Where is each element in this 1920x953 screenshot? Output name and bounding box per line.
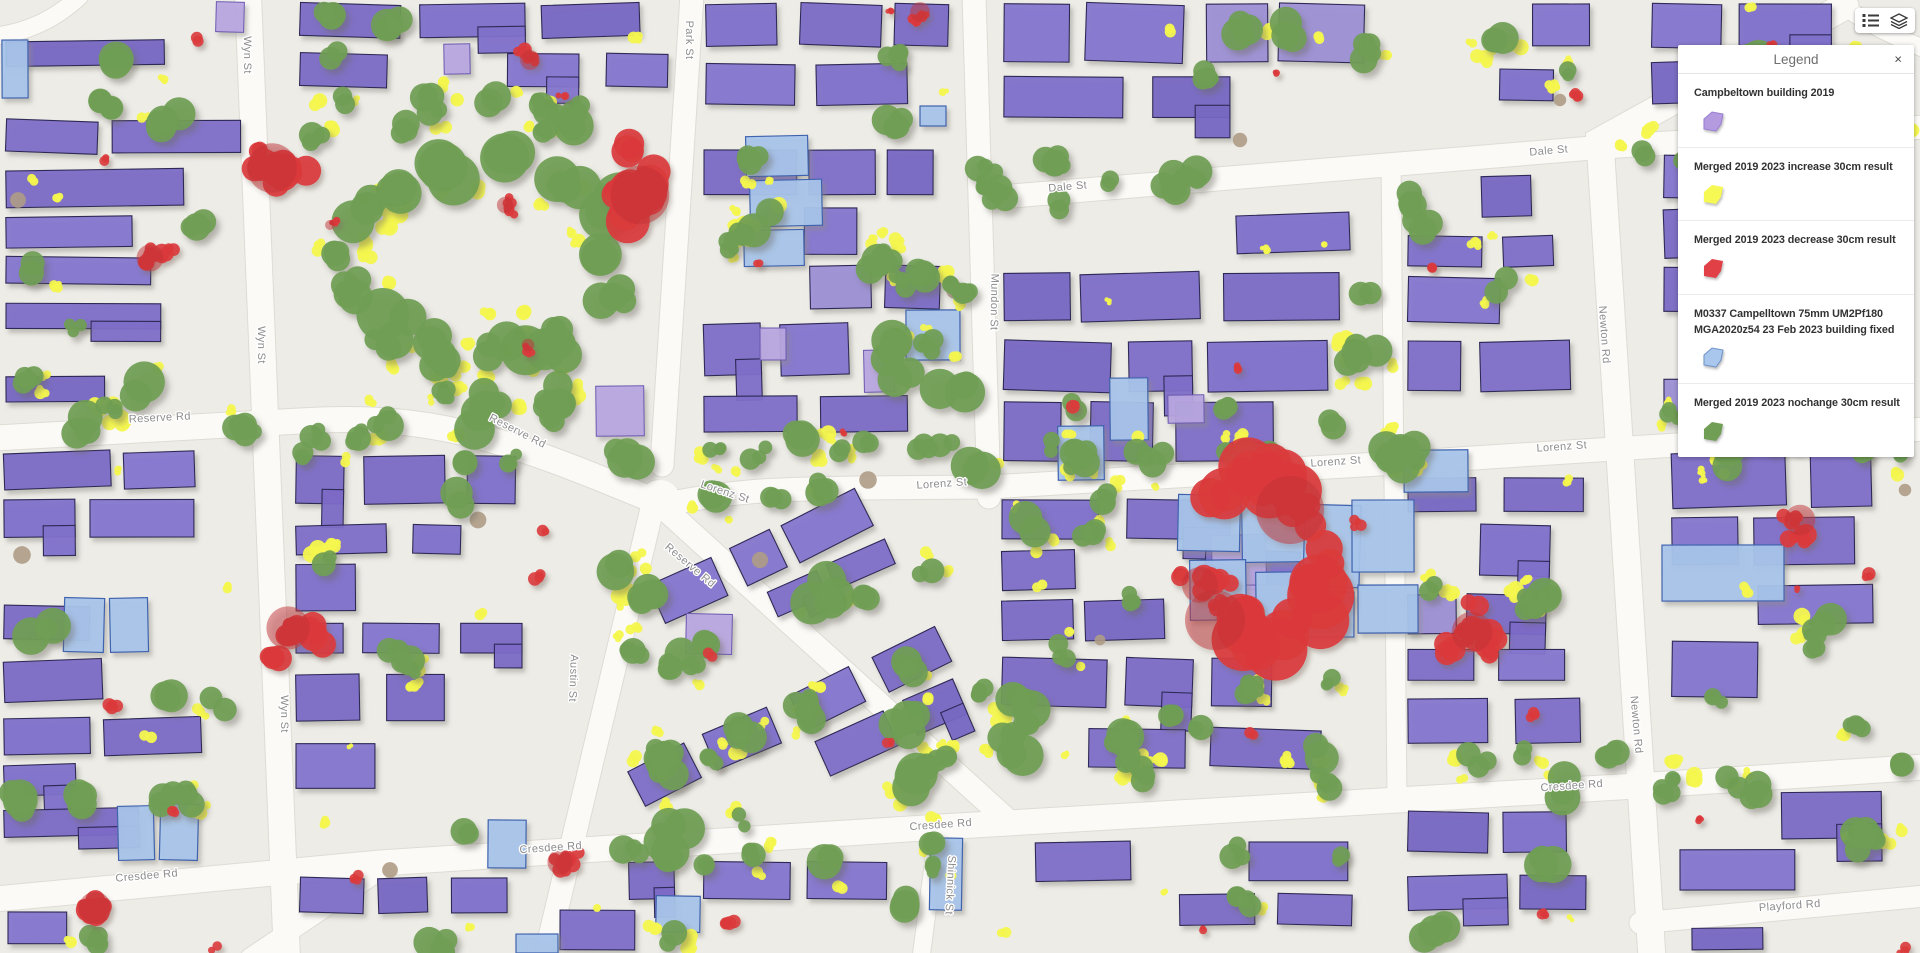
legend-swatch xyxy=(1703,111,1725,132)
legend-item: Merged 2019 2023 decrease 30cm result xyxy=(1678,221,1914,295)
map-toolbar xyxy=(1855,8,1915,33)
legend-item-label: Campbeltown building 2019 xyxy=(1694,86,1906,102)
street-label: Wyn St xyxy=(278,695,290,733)
street-label: Wyn St xyxy=(255,326,267,364)
legend-item: Merged 2019 2023 nochange 30cm result xyxy=(1678,384,1914,457)
street-label: Austin St xyxy=(566,654,580,702)
legend-swatch xyxy=(1703,421,1725,442)
legend-list-icon xyxy=(1862,13,1879,28)
legend-item: M0337 Campelltown 75mm UM2Pf180 MGA2020z… xyxy=(1678,295,1914,384)
legend-item-label: Merged 2019 2023 increase 30cm result xyxy=(1694,160,1906,176)
close-icon[interactable]: × xyxy=(1891,50,1905,69)
legend-items: Campbeltown building 2019Merged 2019 202… xyxy=(1678,74,1914,457)
legend-swatch xyxy=(1703,184,1725,205)
legend-item-label: Merged 2019 2023 nochange 30cm result xyxy=(1694,396,1906,412)
legend-item-label: Merged 2019 2023 decrease 30cm result xyxy=(1694,233,1906,249)
map-canvas[interactable]: Wyn StWyn StWyn StPark StMundon StDale S… xyxy=(0,0,1920,953)
layers-toggle-button[interactable] xyxy=(1886,10,1912,32)
layers-icon xyxy=(1890,13,1908,29)
street-label: Park St xyxy=(683,21,695,60)
legend-item: Merged 2019 2023 increase 30cm result xyxy=(1678,148,1914,222)
legend-panel: Legend × Campbeltown building 2019Merged… xyxy=(1678,45,1914,457)
legend-swatch xyxy=(1703,258,1725,279)
street-label: Mundon St xyxy=(988,274,1001,331)
legend-header: Legend × xyxy=(1678,45,1914,74)
legend-item-label: M0337 Campelltown 75mm UM2Pf180 MGA2020z… xyxy=(1694,307,1906,338)
legend-swatch xyxy=(1703,347,1725,368)
legend-title: Legend xyxy=(1773,52,1818,67)
legend-item: Campbeltown building 2019 xyxy=(1678,74,1914,148)
street-label: Wyn St xyxy=(241,36,253,74)
legend-toggle-button[interactable] xyxy=(1858,10,1884,32)
